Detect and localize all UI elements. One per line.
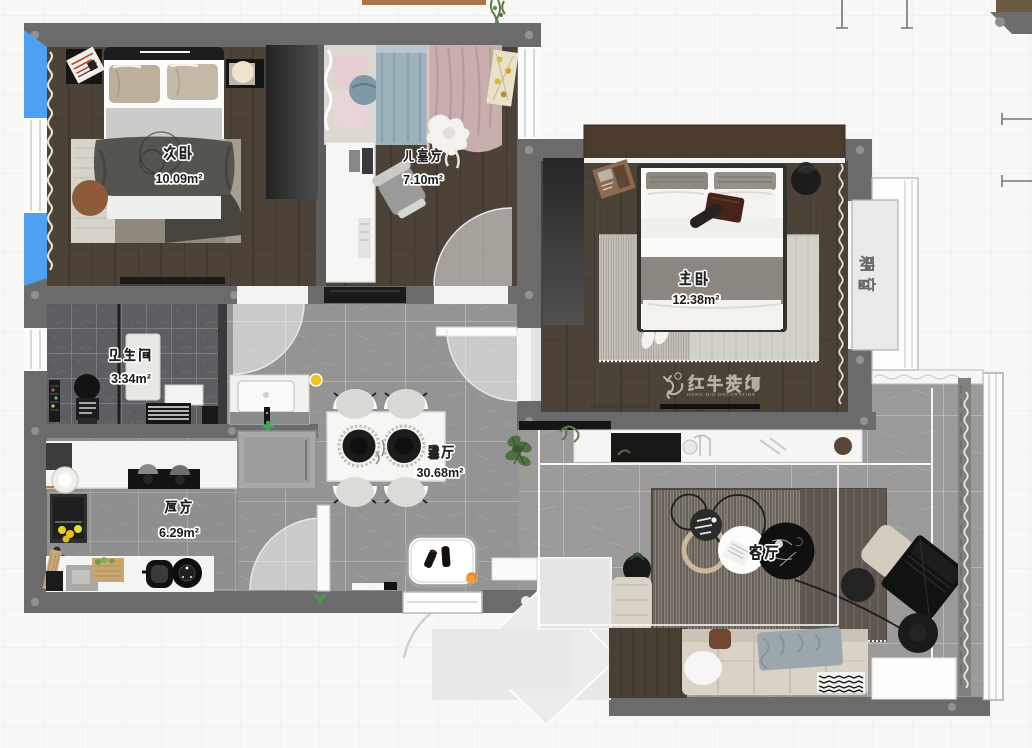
svg-text:7.10m²: 7.10m² xyxy=(403,173,443,187)
svg-text:3.34m²: 3.34m² xyxy=(111,372,151,386)
svg-text:30.68m²: 30.68m² xyxy=(417,466,464,480)
svg-text:6.29m²: 6.29m² xyxy=(159,526,199,540)
svg-text:10.09m²: 10.09m² xyxy=(156,172,203,186)
svg-text:HONG NIU DECORATION: HONG NIU DECORATION xyxy=(687,392,756,397)
svg-text:12.38m²: 12.38m² xyxy=(673,293,720,307)
